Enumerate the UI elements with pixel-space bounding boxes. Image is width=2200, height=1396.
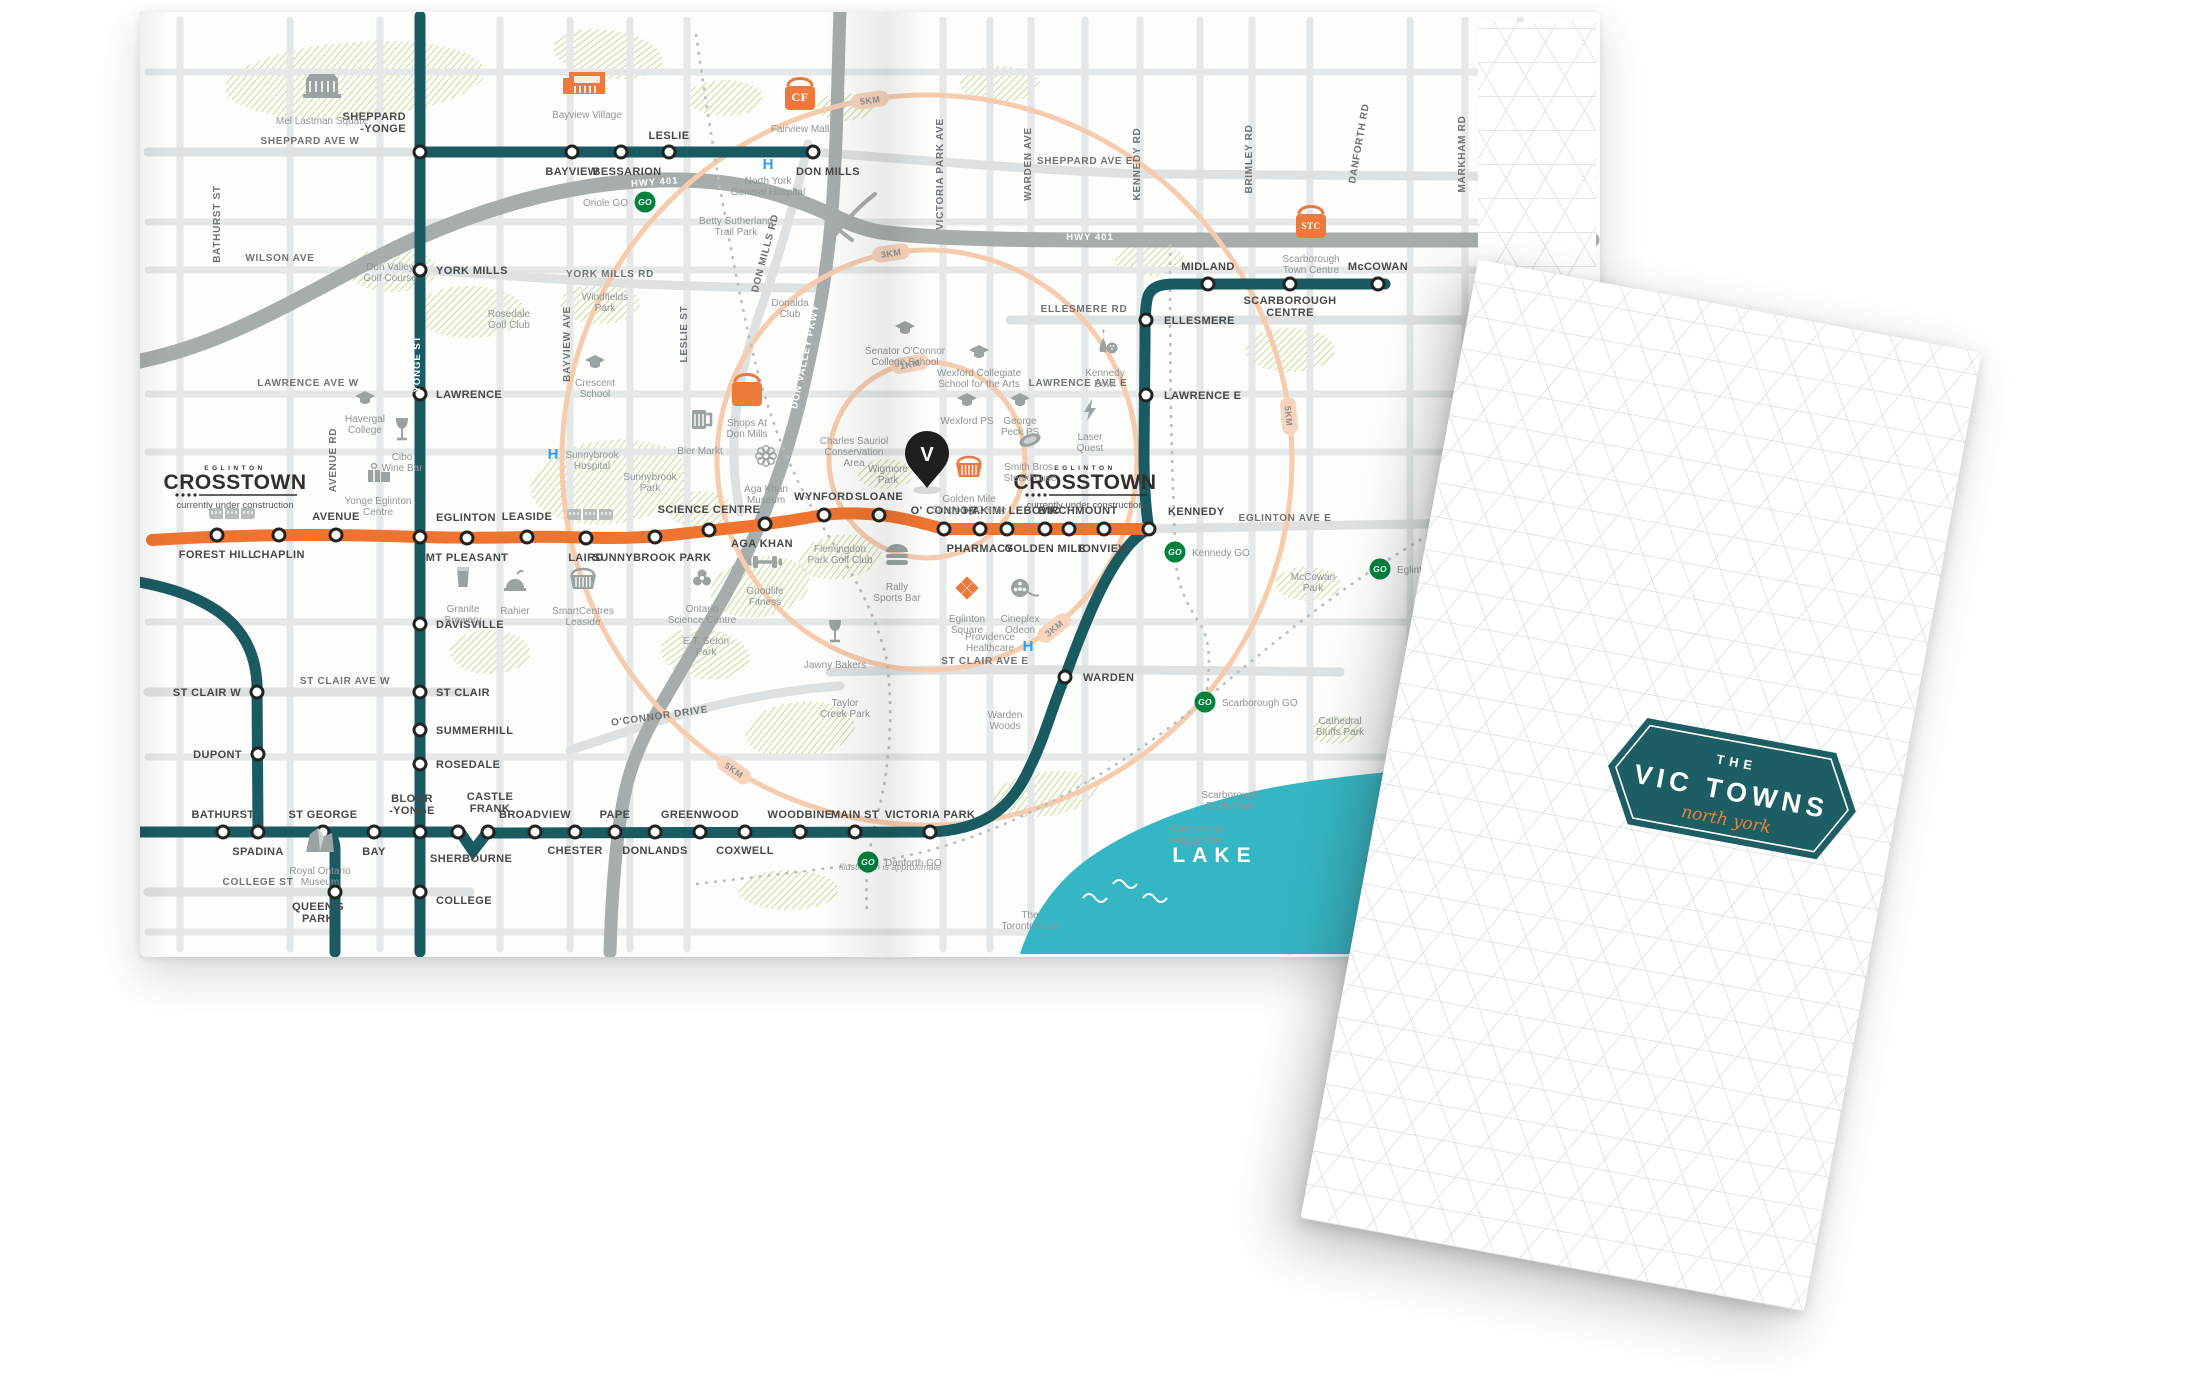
subway-station-label: BESSARION (593, 166, 662, 178)
crosstown-station-label: GOLDEN MILE (1005, 543, 1086, 555)
poi: TaylorCreek Park (820, 698, 871, 720)
street-label: SHEPPARD AVE W (260, 136, 359, 147)
lrt-train-icon (209, 508, 255, 519)
poi-label: Betty SutherlandTrail Park (699, 216, 773, 238)
subway-station-label: COLLEGE (436, 895, 492, 907)
poi-label: Senator O'ConnorCollege School (865, 346, 946, 368)
crosstown-station (703, 524, 715, 536)
subway-station (251, 686, 263, 698)
poi: Bayview Village (552, 72, 622, 121)
subway-station (217, 826, 229, 838)
poi: Jawny Bakers (804, 620, 866, 671)
poi-label: CrescentSchool (575, 378, 615, 400)
subway-station (794, 826, 806, 838)
poi-label: Wexford CollegiateSchool for the Arts (937, 368, 1022, 390)
poi-label: Aga KhanMuseum (744, 484, 788, 506)
poi-label: Jawny Bakers (804, 660, 866, 671)
poi: Senator O'ConnorCollege School (865, 321, 946, 368)
ring-distance-pill: 3KM (1034, 610, 1074, 646)
poi: Don ValleyGolf Course (363, 262, 417, 284)
bag-monogram: CF (792, 90, 809, 104)
poi: RosedaleGolf Club (488, 309, 531, 331)
crosstown-station-label: LEASIDE (502, 511, 552, 523)
subway-station-label: VICTORIA PARK (885, 809, 976, 821)
crosstown-station-label: IONVIEW (1079, 543, 1130, 555)
subway-station-label: BATHURST (192, 809, 255, 821)
subway-station-label: SUMMERHILL (436, 725, 513, 737)
subway-station-label: COXWELL (716, 845, 774, 857)
street-label: COLLEGE ST (223, 877, 294, 888)
street-label: LESLIE ST (679, 306, 690, 363)
subway-station-label: BROADVIEW (499, 809, 571, 821)
street-label: AVENUE RD (328, 428, 339, 492)
subway-station (414, 724, 426, 736)
crosstown-station (1001, 523, 1013, 535)
subway-station-label: CHESTER (547, 845, 602, 857)
subway-station-label: DUPONT (193, 749, 242, 761)
poi: Wexford CollegiateSchool for the Arts (937, 345, 1022, 390)
subway-station (252, 826, 264, 838)
subway-station (649, 826, 661, 838)
subway-station-label: BAYVIEW (545, 166, 598, 178)
wine-icon (829, 620, 841, 641)
poi: Wexford PS (940, 393, 993, 427)
poi: ScarboroughHeights Park (1166, 824, 1224, 846)
crosstown-station-label: FOREST HILL (179, 549, 256, 561)
poi: LaserQuest (1077, 399, 1104, 454)
ring-distance-pill: 5KM (850, 89, 890, 110)
poi-label: Royal OntarioMuseum (289, 866, 351, 888)
street-label: BATHURST ST (212, 185, 223, 263)
lrt-train-icon (567, 509, 613, 520)
subway-station-label: ST GEORGE (289, 809, 358, 821)
poi-label: Bayview Village (552, 110, 622, 121)
building-icon (303, 74, 341, 98)
poi-label: RosedaleGolf Club (488, 309, 531, 331)
poi-label: Fairview Mall (771, 124, 829, 135)
go-station-label: Scarborough GO (1222, 698, 1298, 709)
beer-icon (457, 567, 469, 587)
ring-distance-pill: 3KM (871, 242, 911, 263)
subway-station (368, 826, 380, 838)
street-label: ELLESMERE RD (1041, 304, 1128, 315)
subway-station-label: DON MILLS (796, 166, 860, 178)
beermug-icon (692, 410, 711, 429)
poi-label: ScarboroughTown Centre (1282, 254, 1339, 276)
street-label: HWY 401 (631, 175, 679, 189)
crosstown-station (818, 509, 830, 521)
subway-station (1372, 278, 1384, 290)
lake-label: LAKE (1172, 844, 1257, 867)
subway-station (414, 758, 426, 770)
bagCF-icon: CF (785, 79, 815, 111)
street-label: WARDEN AVE (1023, 127, 1034, 201)
crosstown-station (273, 529, 285, 541)
poi: WardenWoods (988, 710, 1023, 732)
H-icon: H (763, 156, 774, 173)
subway-station (569, 826, 581, 838)
crosstown-station (461, 532, 473, 544)
park-area (450, 630, 530, 674)
poi-label: Don ValleyGolf Course (363, 262, 417, 284)
basketO-icon (956, 457, 982, 477)
street-label: WILSON AVE (245, 253, 314, 264)
poi: CathedralBluffs Park (1316, 716, 1365, 738)
pin-letter: V (920, 444, 934, 466)
subway-station (1143, 523, 1155, 535)
ring-distance-pill: 5KM (1279, 396, 1298, 435)
go-icon-text: GO (1373, 564, 1387, 574)
street-label: SHEPPARD AVE E (1037, 156, 1133, 167)
poi-label: ScarboroughBluffs Park (1201, 790, 1258, 812)
street-label: BAYVIEW AVE (562, 306, 573, 382)
cake-icon (504, 571, 526, 591)
hospital-icon-letter: H (763, 156, 774, 173)
crosstown-station-label: WYNFORD (794, 491, 854, 503)
poi-label: ProvidenceHealthcare (965, 632, 1015, 654)
bag-monogram: STC (1301, 221, 1320, 231)
hospital-icon-letter: H (548, 446, 559, 463)
science-icon (693, 570, 711, 586)
ring-distance-label: 5KM (1283, 405, 1295, 426)
subway-station-label: BAY (362, 846, 386, 858)
subway-station (414, 886, 426, 898)
crosstown-logo-subtitle: currently under construction (1026, 500, 1143, 511)
subway-station-label: MAIN ST (831, 809, 879, 821)
go-icon-text: GO (861, 857, 875, 867)
go-icon-text: GO (1168, 547, 1182, 557)
subway-station-label: ST CLAIR W (173, 687, 241, 699)
subway-station-label: BLOOR-YONGE (389, 793, 435, 817)
crosstown-station (974, 523, 986, 535)
burger-icon (886, 544, 908, 565)
street-label: ST CLAIR AVE E (941, 656, 1029, 667)
poi-label: FlemingdonPark Golf Club (807, 544, 872, 566)
poi: Betty SutherlandTrail Park (699, 216, 773, 238)
bag-icon (732, 375, 762, 407)
crosstown-station (580, 532, 592, 544)
subway-station (615, 146, 627, 158)
park-area (687, 80, 763, 116)
crosstown-logo-title: CROSSTOWN (164, 471, 307, 494)
diamonds-icon (955, 576, 978, 599)
subway-station-label: DONLANDS (622, 845, 688, 857)
subway-station (663, 146, 675, 158)
poi-label: ScarboroughHeights Park (1166, 824, 1224, 846)
poi-label: LaserQuest (1077, 432, 1104, 454)
subway-station (609, 826, 621, 838)
go-station: GOScarborough GO (1195, 692, 1298, 713)
vic-towns-badge: THE VIC TOWNS north york (1595, 704, 1869, 873)
subway-station (452, 826, 464, 838)
go-station-label: Kennedy GO (1192, 548, 1250, 559)
poi: DonaldaClub (771, 298, 809, 320)
street-label: YONGE ST (412, 335, 423, 392)
subway-station (482, 826, 494, 838)
grad-icon (895, 321, 915, 334)
H-icon: H (1023, 638, 1034, 655)
subway-station-label: McCOWAN (1348, 261, 1408, 273)
bowling-icon (1100, 330, 1118, 354)
poi-label: Mel Lastman Square (276, 116, 369, 127)
poi-label: HavergalCollege (345, 414, 385, 436)
poi: CrescentSchool (575, 355, 615, 400)
crosstown-station-label: SLOANE (855, 491, 903, 503)
subway-station (849, 826, 861, 838)
street-label: MARKHAM RD (1457, 116, 1468, 193)
subway-station (1140, 389, 1152, 401)
poi-label: DonaldaClub (771, 298, 809, 320)
poi-label: GraniteBrewery (445, 604, 482, 626)
subway-station (414, 146, 426, 158)
park-area (1245, 328, 1335, 372)
crosstown-station (649, 531, 661, 543)
crosstown-station (938, 523, 950, 535)
grad-icon (969, 345, 989, 358)
crosstown-station (1039, 523, 1051, 535)
poi: Rahier (500, 571, 530, 617)
eglinton-crosstown-logo: EGLINTONCROSSTOWNcurrently under constru… (164, 465, 307, 511)
poi-label: Bier Markt (677, 446, 723, 457)
crosstown-station (211, 529, 223, 541)
poi: GraniteBrewery (445, 567, 482, 626)
go-icon-text: GO (638, 197, 652, 207)
subway-station-label: ST CLAIR (436, 687, 490, 699)
street-label: ST CLAIR AVE W (300, 676, 390, 687)
subway-station-label: YORK MILLS (436, 265, 508, 277)
subway-station (1059, 671, 1071, 683)
crosstown-station (1098, 523, 1110, 535)
subway-station (1140, 314, 1152, 326)
H-icon: H (548, 446, 559, 463)
poi: ScarboroughBluffs Park (1201, 790, 1258, 812)
subway-station (414, 826, 426, 838)
storefront-icon (563, 72, 605, 94)
crosstown-station-label: SCIENCE CENTRE (658, 504, 761, 516)
poi: HNorth YorkGeneral Hospital (731, 156, 805, 198)
subway-station (924, 826, 936, 838)
wine-icon (396, 418, 408, 439)
go-icon-text: GO (1198, 697, 1212, 707)
subway-station (807, 146, 819, 158)
street-label: EGLINTON AVE E (1239, 513, 1332, 524)
subway-station (414, 531, 426, 543)
subway-station-label: PAPE (600, 809, 631, 821)
crosstown-station (873, 509, 885, 521)
go-station: GOKennedy GO (1165, 542, 1251, 563)
subway-station-label: GREENWOOD (661, 809, 739, 821)
park-area (738, 870, 838, 910)
poi-label: RallySports Bar (873, 582, 921, 604)
street-label: KENNEDY RD (1132, 128, 1143, 201)
street-label: VICTORIA PARK AVE (935, 118, 946, 230)
subway-station-label: WARDEN (1083, 672, 1134, 684)
hospital-icon-letter: H (1023, 638, 1034, 655)
subway-station-label: WOODBINE (768, 809, 833, 821)
crosstown-station-label: AGA KHAN (731, 538, 793, 550)
subway-station-label: LESLIE (649, 130, 690, 142)
subway-station-label: EGLINTON (436, 512, 496, 524)
poi: FlemingdonPark Golf Club (807, 544, 872, 566)
subway-station-label: SPADINA (232, 846, 284, 858)
subway-station (529, 826, 541, 838)
crosstown-station-label: SUNNYBROOK PARK (593, 552, 712, 564)
subway-station (414, 618, 426, 630)
subway-station-label: ELLESMERE (1164, 315, 1235, 327)
poi-label: WardenWoods (988, 710, 1023, 732)
subway-station-label: ROSEDALE (436, 759, 500, 771)
subway-station-label: LAWRENCE E (1164, 390, 1241, 402)
crosstown-station-label: MT PLEASANT (426, 552, 509, 564)
street-label: LAWRENCE AVE W (257, 378, 358, 389)
subway-station-label: KENNEDY (1168, 506, 1225, 518)
subway-station (1202, 278, 1214, 290)
poi-label: TaylorCreek Park (820, 698, 871, 720)
go-station: GOOriole GO (583, 192, 656, 213)
crosstown-station (1063, 523, 1075, 535)
subway-station-label: LAWRENCE (436, 389, 502, 401)
subway-station (414, 686, 426, 698)
poi-label: Shops AtDon Mills (726, 418, 767, 440)
crosstown-station (330, 529, 342, 541)
street-label: HWY 401 (1066, 232, 1113, 243)
crosstown-station-label: CHAPLIN (253, 549, 305, 561)
subway-station (694, 826, 706, 838)
poi-label: CathedralBluffs Park (1316, 716, 1365, 738)
poi-label: Golden MileShopping Centre (931, 494, 1006, 516)
crosstown-station-label: AVENUE (312, 511, 359, 523)
street-label: BRIMLEY RD (1244, 124, 1255, 193)
brochure-scene: 1KM3KM3KM5KM5KM5KMLAKESHEPPARD-YONGEBAYV… (0, 0, 2200, 1396)
film-icon (1011, 579, 1039, 597)
crosstown-station-label: PHARMACY (947, 543, 1014, 555)
subway-station (739, 826, 751, 838)
subway-station (1284, 278, 1296, 290)
poi-label: GoodlifeFitness (746, 586, 784, 608)
subway-station (566, 146, 578, 158)
poi: EglintonSquare (949, 576, 985, 636)
grad-icon (585, 355, 605, 368)
poi-label: Wexford PS (940, 416, 993, 427)
subway-station-label: SHERBOURNE (430, 853, 512, 865)
subway-station-label: MIDLAND (1181, 261, 1235, 273)
poi-label: Rahier (500, 606, 530, 617)
go-station-label: Oriole GO (583, 198, 628, 209)
crosstown-station (521, 531, 533, 543)
street-label: YORK MILLS RD (566, 269, 654, 280)
basket-icon (570, 569, 596, 589)
go-station-label: Danforth GO (885, 858, 942, 869)
poi-label: Smith Bros.Steakhouse (1004, 462, 1057, 484)
subway-station (252, 748, 264, 760)
crosstown-station (759, 518, 771, 530)
